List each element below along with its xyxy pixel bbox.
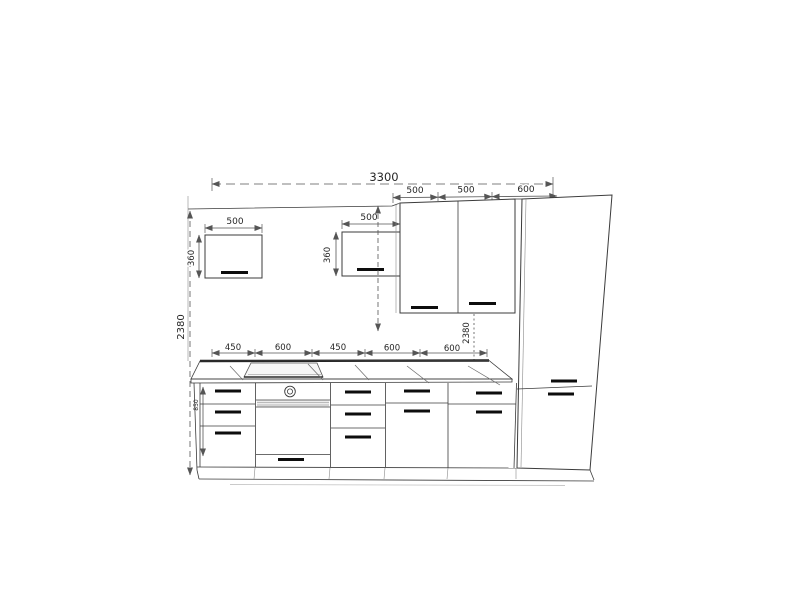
plinth — [197, 468, 594, 486]
oven-knob — [285, 386, 296, 397]
base-unit-oven — [256, 386, 330, 459]
wall-cabinet-2 — [342, 232, 400, 276]
wall-cabinet-1 — [205, 235, 262, 278]
dim-total-width: 3300 — [212, 170, 553, 200]
dim-label-upper-2: 500 — [457, 186, 474, 196]
dim-label-counter-3: 450 — [330, 343, 346, 353]
countertop — [191, 361, 512, 386]
blueprint-page: 3300 500 500 600 2380 500 360 500 — [0, 0, 791, 593]
dim-label-counter-4: 600 — [384, 344, 400, 354]
dim-label-upper-3: 600 — [517, 185, 534, 195]
dim-label-upper-1: 500 — [406, 186, 423, 196]
dim-label-counter-2: 600 — [275, 343, 291, 353]
dim-label-height-left: 2380 — [176, 314, 187, 339]
base-unit-door-1 — [386, 391, 448, 411]
kitchen-blueprint: 3300 500 500 600 2380 500 360 500 — [0, 0, 791, 593]
dim-label-wc2-height: 360 — [323, 247, 333, 263]
base-unit-door-2 — [448, 393, 516, 412]
dim-label-wc1-height: 360 — [187, 250, 197, 266]
cooktop — [244, 363, 323, 377]
dim-label-height-right: 2380 — [462, 322, 472, 344]
dim-label-counter-1: 450 — [225, 343, 241, 353]
base-unit-drawers-1 — [200, 391, 255, 433]
dim-label-wc2-width: 500 — [360, 213, 377, 223]
dim-label-wc1-width: 500 — [226, 217, 243, 227]
oven-vent — [257, 401, 329, 408]
dim-label-base-height: 850 — [193, 399, 200, 411]
counter-front-edge — [191, 379, 512, 383]
base-unit-drawers-2 — [331, 392, 385, 437]
tall-cabinet — [515, 195, 612, 480]
dim-counter-widths: 450 600 450 600 600 — [212, 343, 487, 357]
dim-label-total-width: 3300 — [369, 170, 398, 184]
wall-cabinet-double — [396, 199, 515, 313]
dim-label-counter-5: 600 — [444, 344, 460, 354]
